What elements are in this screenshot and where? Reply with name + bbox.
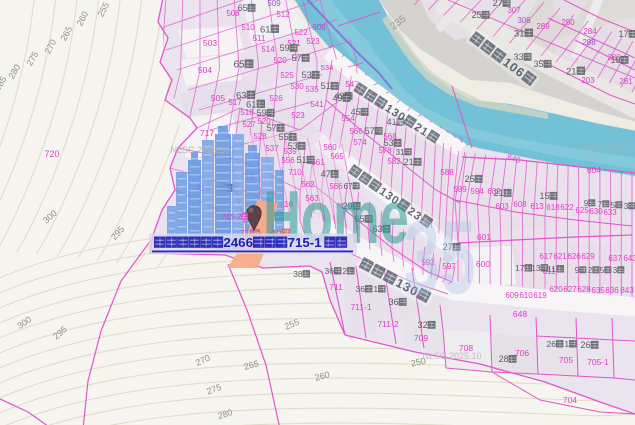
svg-text:203: 203 (581, 76, 595, 85)
svg-text:NLSC 2025.10: NLSC 2025.10 (170, 145, 229, 155)
svg-text:9: 9 (584, 199, 589, 208)
svg-text:36: 36 (325, 266, 335, 276)
svg-text:600: 600 (476, 259, 490, 269)
svg-text:59: 59 (257, 108, 267, 118)
svg-text:843: 843 (620, 286, 634, 295)
svg-text:17: 17 (619, 29, 629, 39)
svg-text:621: 621 (553, 252, 567, 261)
svg-text:35: 35 (404, 200, 476, 315)
svg-text:1: 1 (564, 339, 569, 349)
svg-text:574: 574 (353, 138, 367, 147)
svg-text:NLSC 2025.10: NLSC 2025.10 (422, 351, 481, 361)
svg-text:15: 15 (540, 191, 550, 201)
svg-text:566: 566 (349, 127, 363, 136)
svg-text:21: 21 (404, 157, 414, 167)
svg-text:604: 604 (587, 165, 601, 175)
svg-text:45: 45 (351, 107, 361, 117)
svg-text:628: 628 (577, 285, 591, 294)
svg-text:523: 523 (291, 111, 305, 120)
svg-text:7: 7 (598, 200, 603, 209)
svg-text:51: 51 (297, 155, 307, 165)
svg-text:509: 509 (267, 0, 281, 8)
svg-text:36: 36 (356, 284, 366, 294)
svg-text:522: 522 (294, 28, 308, 37)
svg-text:505: 505 (211, 93, 225, 103)
svg-text:715: 715 (222, 212, 235, 221)
svg-text:3: 3 (624, 202, 629, 211)
svg-text:648: 648 (513, 309, 527, 319)
svg-text:57: 57 (267, 123, 277, 133)
svg-text:541: 541 (310, 100, 324, 109)
svg-text:622: 622 (560, 203, 574, 212)
svg-text:281: 281 (619, 77, 633, 86)
svg-text:617: 617 (539, 252, 553, 261)
svg-text:2466: 2466 (223, 235, 253, 250)
svg-text:523: 523 (306, 37, 320, 46)
svg-text:28: 28 (499, 354, 509, 364)
svg-text:520: 520 (273, 56, 287, 65)
svg-text:2: 2 (342, 266, 347, 276)
svg-text:289: 289 (536, 22, 550, 31)
svg-text:32: 32 (418, 320, 428, 330)
svg-text:21: 21 (566, 66, 577, 77)
svg-text:560: 560 (323, 143, 337, 152)
svg-text:603: 603 (495, 202, 509, 211)
svg-text:26: 26 (581, 340, 591, 350)
svg-text:31: 31 (396, 148, 405, 157)
svg-text:704: 704 (563, 395, 577, 405)
svg-text:711: 711 (329, 282, 343, 292)
svg-text:565: 565 (330, 152, 344, 161)
svg-text:19: 19 (611, 55, 621, 65)
svg-text:717: 717 (200, 128, 214, 138)
svg-text:65: 65 (234, 60, 246, 71)
svg-text:504: 504 (198, 65, 212, 75)
svg-text:280: 280 (561, 18, 575, 27)
svg-text:537: 537 (265, 144, 279, 153)
svg-text:1: 1 (373, 284, 378, 294)
svg-text:49: 49 (333, 93, 343, 103)
svg-text:534: 534 (321, 63, 334, 72)
svg-text:836: 836 (605, 286, 619, 295)
svg-text:51: 51 (321, 81, 331, 91)
svg-text:25: 25 (465, 174, 475, 184)
svg-text:635: 635 (591, 286, 605, 295)
svg-text:514: 514 (261, 45, 275, 54)
svg-text:508: 508 (312, 23, 326, 32)
svg-text:627: 627 (563, 285, 577, 294)
svg-text:530: 530 (290, 82, 304, 91)
svg-text:706: 706 (515, 348, 529, 358)
svg-text:618: 618 (546, 203, 560, 212)
svg-text:588: 588 (440, 168, 454, 177)
svg-text:57: 57 (292, 53, 302, 63)
svg-text:306: 306 (517, 16, 531, 25)
svg-text:25: 25 (472, 10, 482, 20)
svg-text:59: 59 (280, 43, 290, 53)
svg-text:284: 284 (583, 27, 597, 36)
svg-text:705-1: 705-1 (587, 357, 609, 367)
svg-text:307: 307 (507, 6, 521, 15)
svg-text:512: 512 (276, 10, 290, 19)
svg-text:609: 609 (505, 291, 519, 300)
svg-text:510: 510 (241, 23, 255, 32)
svg-text:57: 57 (365, 126, 375, 136)
svg-text:NLSC 2025.10: NLSC 2025.10 (580, 143, 635, 153)
svg-text:53: 53 (384, 138, 394, 148)
svg-text:620: 620 (549, 285, 563, 294)
svg-text:2: 2 (237, 212, 241, 221)
svg-text:709: 709 (414, 333, 428, 343)
svg-text:619: 619 (533, 291, 547, 300)
svg-text:63: 63 (236, 90, 247, 101)
svg-text:528: 528 (253, 132, 267, 141)
svg-text:17: 17 (515, 263, 525, 273)
svg-text:613: 613 (530, 202, 544, 211)
svg-text:65: 65 (238, 3, 248, 13)
svg-text:27: 27 (493, 0, 503, 8)
svg-text:61: 61 (246, 99, 257, 110)
svg-text:31: 31 (514, 28, 525, 39)
svg-text:53: 53 (288, 141, 298, 151)
svg-text:582: 582 (387, 157, 401, 166)
svg-text:11: 11 (547, 264, 556, 274)
svg-text:288: 288 (582, 38, 596, 47)
svg-text:3: 3 (613, 266, 618, 275)
svg-text:5: 5 (600, 266, 605, 275)
svg-text:527: 527 (242, 120, 256, 129)
svg-text:637: 637 (608, 254, 622, 263)
svg-text:5: 5 (611, 201, 616, 210)
svg-text:26: 26 (547, 339, 557, 349)
svg-text:21: 21 (494, 188, 504, 198)
svg-text:36: 36 (389, 297, 399, 307)
svg-text:610: 610 (519, 291, 533, 300)
svg-text:9: 9 (575, 266, 580, 275)
svg-text:715-1: 715-1 (288, 235, 323, 250)
svg-text:601: 601 (477, 232, 491, 242)
svg-text:594: 594 (470, 187, 484, 196)
svg-text:38: 38 (293, 269, 303, 279)
svg-text:13: 13 (531, 263, 541, 273)
svg-text:626: 626 (567, 252, 581, 261)
svg-text:525: 525 (280, 71, 294, 80)
svg-text:589: 589 (453, 185, 467, 194)
svg-text:720: 720 (44, 149, 59, 159)
svg-text:526: 526 (269, 94, 283, 103)
svg-text:705: 705 (559, 355, 573, 365)
svg-text:629: 629 (581, 252, 595, 261)
svg-text:535: 535 (305, 85, 319, 94)
svg-text:61: 61 (260, 24, 271, 35)
svg-text:711-2: 711-2 (377, 319, 398, 329)
svg-text:711-1: 711-1 (350, 302, 371, 312)
svg-text:608: 608 (513, 200, 527, 209)
svg-text:643: 643 (623, 254, 635, 263)
svg-text:556: 556 (281, 156, 295, 165)
svg-text:2: 2 (588, 266, 593, 275)
svg-text:503: 503 (203, 38, 217, 48)
svg-text:35: 35 (534, 59, 544, 69)
svg-text:53: 53 (302, 70, 312, 80)
